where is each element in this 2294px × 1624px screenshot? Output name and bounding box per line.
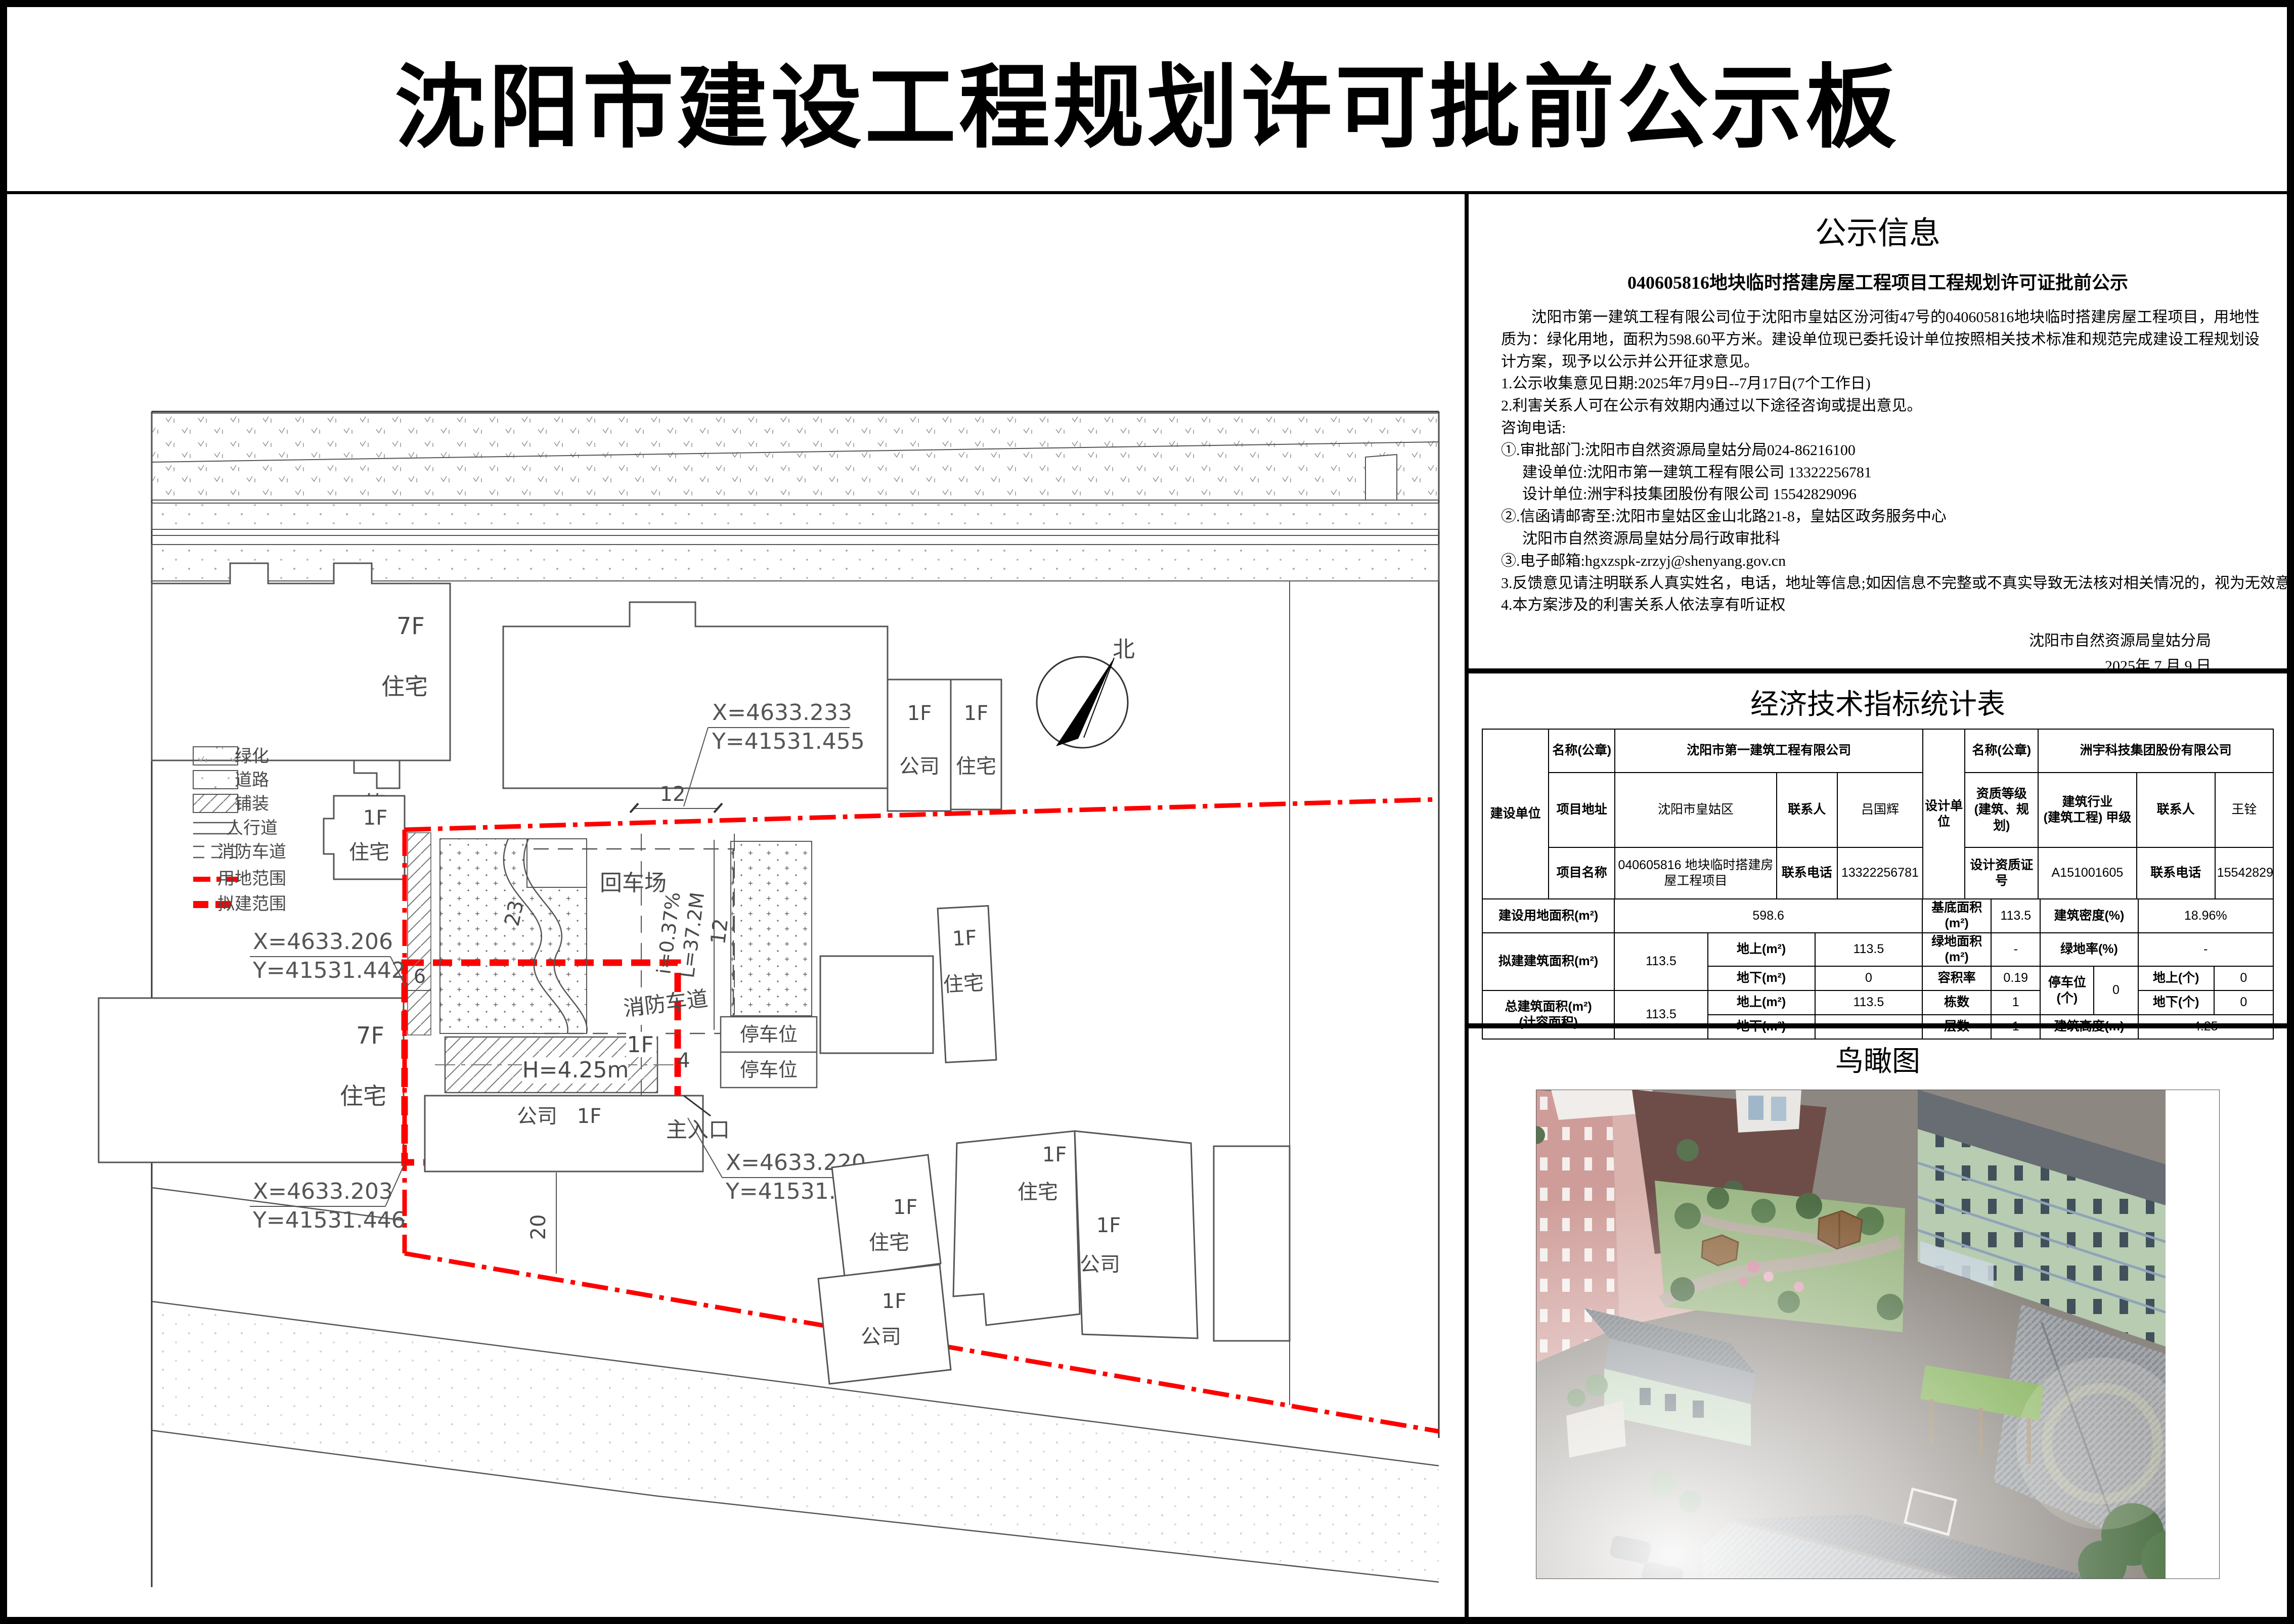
cell: 名称(公章) (1965, 729, 2038, 773)
notice-item: 设计单位:洲宇科技集团股份有限公司 15542829096 (1501, 483, 2260, 506)
plan-legend: 绿化 道路 铺装 人行道 消防车道 用地范围 拟建范围 (193, 746, 286, 914)
green-belt (152, 413, 1439, 500)
legend-label: 消防车道 (217, 842, 286, 862)
cell: 地上(m²) (1708, 933, 1815, 967)
cell-line: 建筑行业 (2040, 794, 2134, 810)
bldg-label-floors: 1F (577, 1105, 601, 1128)
stats-panel: 经济技术指标统计表 建设单位 名称(公章) 沈阳市第一建筑工程有限公司 设计单位… (1469, 673, 2287, 1028)
cell: 名称(公章) (1549, 729, 1615, 773)
building-company-4f: 公司 4F (503, 602, 888, 788)
cell-unit-designer: 设计单位 (1923, 729, 1965, 899)
notice-item: ③.电子邮箱:hgxzspk-zrzyj@shenyang.gov.cn (1501, 550, 2260, 572)
cell: 吕国辉 (1837, 773, 1923, 847)
building-company-1f: 公司 1F (425, 1096, 703, 1171)
cell: 0 (2214, 990, 2273, 1015)
cell: 沈阳市第一建筑工程有限公司 (1615, 729, 1923, 773)
dim-label: 12 (707, 917, 733, 945)
stats-table-bottom: 建设用地面积(m²) 598.6 基底面积(m²) 113.5 建筑密度(%) … (1482, 898, 2274, 1040)
coord-callout-1: X=4633.233 Y=41531.455 (684, 697, 865, 806)
cell: 113.5 (1815, 933, 1922, 967)
notice-panel: 公示信息 040605816地块临时搭建房屋工程项目工程规划许可证批前公示 沈阳… (1469, 194, 2287, 673)
north-label: 北 (1113, 637, 1135, 662)
legend-label: 铺装 (235, 794, 269, 814)
cell: - (1991, 933, 2040, 967)
cell-line: 资质等级 (1967, 786, 2036, 802)
notice-body: 沈阳市第一建筑工程有限公司位于沈阳市皇姑区汾河街47号的040605816地块临… (1501, 306, 2260, 616)
bldg-label-floors: 1F (952, 926, 978, 951)
cell-line: 总建筑面积(m²) (1484, 999, 1612, 1015)
cell: 1 (1991, 990, 2040, 1015)
cell-line: (建筑、规划) (1967, 802, 2036, 834)
coord-x: X=4633.233 (712, 700, 852, 726)
page-title: 沈阳市建设工程规划许可批前公示板 (394, 33, 1900, 165)
bldg-label-use: 住宅 (1018, 1181, 1058, 1204)
dim-label: 12 (660, 783, 686, 806)
site-plan-drawing: 7F 住宅 筒 1F 住宅 绿化 道路 铺装 (7, 194, 1465, 1617)
birdseye-render (1536, 1090, 2220, 1579)
signature-org: 沈阳市自然资源局皇姑分局 (1469, 628, 2211, 654)
turnaround-label: 回车场 (600, 870, 667, 896)
cell-unit-builder: 建设单位 (1482, 729, 1549, 899)
notice-signature: 沈阳市自然资源局皇姑分局 2025年 7 月 9 日 (1469, 628, 2287, 679)
legend-label: 人行道 (226, 818, 278, 838)
coord-y: Y=41531.455 (712, 729, 865, 754)
cell: 建设用地面积(m²) (1482, 899, 1614, 933)
cell: 地下(个) (2138, 990, 2214, 1015)
dim-20: 20 (527, 1172, 556, 1274)
bldg-label-floors: 1F (964, 702, 988, 725)
building-1f-left: 1F 住宅 (324, 796, 405, 879)
cell: 建筑行业 (建筑工程) 甲级 (2038, 773, 2136, 847)
stats-table-top: 建设单位 名称(公章) 沈阳市第一建筑工程有限公司 设计单位 名称(公章) 洲宇… (1482, 729, 2274, 899)
bldg-label-use: 住宅 (869, 1231, 909, 1254)
cell: 联系人 (2137, 773, 2215, 847)
cell-line: (建筑工程) 甲级 (2040, 810, 2134, 826)
cell: 地上(m²) (1708, 990, 1815, 1015)
legend-label: 拟建范围 (217, 894, 286, 914)
cell: 项目地址 (1549, 773, 1615, 847)
birdseye-heading: 鸟瞰图 (1469, 1039, 2287, 1079)
paving-strip (408, 833, 431, 1035)
coord-callout-2: X=4633.206 Y=41531.442 (250, 929, 406, 986)
bldg-label-floors: 1F (363, 806, 387, 830)
cell: 基底面积(m²) (1922, 899, 1991, 933)
stats-table: 建设单位 名称(公章) 沈阳市第一建筑工程有限公司 设计单位 名称(公章) 洲宇… (1482, 729, 2274, 1040)
notice-item: 沈阳市自然资源局皇姑分局行政审批科 (1501, 528, 2260, 550)
bldg-label-use: 公司 (899, 755, 940, 778)
cell: 资质等级 (建筑、规划) (1965, 773, 2038, 847)
notice-item: ②.信函请邮寄至:沈阳市皇姑区金山北路21-8，皇姑区政务服务中心 (1501, 506, 2260, 528)
bldg-label-floors: 7F (356, 1022, 384, 1049)
bldg-label-use: 住宅 (381, 673, 428, 700)
coord-x: X=4633.206 (253, 929, 393, 955)
cell: 040605816 地块临时搭建房屋工程项目 (1615, 847, 1776, 899)
fire-lane-label: 消防车道 (622, 986, 710, 1021)
bldg-label-use: 住宅 (349, 841, 389, 864)
legend-label: 道路 (235, 770, 269, 790)
bldg-label-use: 住宅 (943, 971, 984, 997)
cell: 建筑密度(%) (2040, 899, 2138, 933)
height-label: H=4.25m (522, 1057, 629, 1083)
bldg-label-floors: 1F (893, 1196, 917, 1219)
cell: 沈阳市皇姑区 (1615, 773, 1776, 847)
bldg-label-floors: 1F (1042, 1143, 1067, 1166)
cell: 设计资质证号 (1965, 847, 2038, 899)
cell: 洲宇科技集团股份有限公司 (2038, 729, 2273, 773)
bldg-label-floors: 1F (907, 702, 932, 725)
cell: - (2138, 933, 2273, 967)
coord-x: X=4633.203 (253, 1179, 393, 1204)
parking-label: 停车位 (740, 1059, 798, 1081)
cell: 联系电话 (2137, 847, 2215, 899)
building-towers: 1F 公司 1F 住宅 (888, 680, 1001, 811)
legend-label: 绿化 (235, 746, 269, 766)
notice-item: 4.本方案涉及的利害关系人依法享有听证权 (1501, 594, 2260, 616)
bldg-label-floors: 1F (882, 1290, 906, 1313)
cell: 绿地率(%) (2040, 933, 2138, 967)
cell: A151001605 (2038, 847, 2136, 899)
dim-label: 6 (414, 965, 426, 987)
bldg-label-floors: 1F (1096, 1214, 1121, 1237)
coord-y: Y=41531.442 (252, 958, 406, 983)
bldg-label-use: 公司 (861, 1325, 901, 1348)
coord-callout-3: X=4633.203 Y=41531.446 (250, 1163, 406, 1233)
bldg-label-use: 住宅 (340, 1082, 386, 1110)
bldg-label-use: 公司 (517, 1105, 557, 1128)
proposed-building: H=4.25m 1F (435, 1032, 680, 1093)
cell: 113.5 (1614, 933, 1707, 991)
notice-item: 建设单位:沈阳市第一建筑工程有限公司 13322256781 (1501, 462, 2260, 484)
title-bar: 沈阳市建设工程规划许可批前公示板 (7, 7, 2287, 194)
cell: 113.5 (1815, 990, 1922, 1015)
notice-item: 2.利害关系人可在公示有效期内通过以下途径咨询或提出意见。 (1501, 395, 2260, 417)
bldg-label-use: 公司 (1080, 1253, 1120, 1276)
cell: 15542829096 (2215, 847, 2273, 899)
legend-label: 用地范围 (217, 869, 286, 889)
entrance-label: 主入口 (666, 1117, 730, 1142)
cell: 王铨 (2215, 773, 2273, 847)
birdseye-panel: 鸟瞰图 (1469, 1028, 2287, 1617)
notice-paragraph: 沈阳市第一建筑工程有限公司位于沈阳市皇姑区汾河街47号的040605816地块临… (1501, 306, 2260, 373)
parking-label: 停车位 (740, 1023, 798, 1046)
right-column: 公示信息 040605816地块临时搭建房屋工程项目工程规划许可证批前公示 沈阳… (1465, 194, 2287, 1617)
dim-label: 4 (677, 1049, 690, 1072)
bldg-label-floors: 7F (396, 612, 425, 640)
cell: 停车位(个) (2040, 966, 2094, 1015)
building-7f-long: 7F 住宅 (99, 998, 404, 1162)
stats-heading: 经济技术指标统计表 (1469, 682, 2287, 723)
cell: 0 (1815, 966, 1922, 990)
building-1f-right: 1F 住宅 (938, 906, 996, 1063)
cell: 13322256781 (1837, 847, 1923, 899)
bldg-label-floors: 1F (627, 1032, 653, 1058)
notice-item: 3.反馈意见请注明联系人真实姓名，电话，地址等信息;如因信息不完整或不真实导致无… (1501, 572, 2260, 595)
dim-label: 20 (527, 1214, 550, 1240)
cell: 18.96% (2138, 899, 2273, 933)
notice-board: 沈阳市建设工程规划许可批前公示板 (0, 0, 2294, 1624)
notice-item: ①.审批部门:沈阳市自然资源局皇姑分局024-86216100 (1501, 439, 2260, 462)
bldg-label-use: 住宅 (956, 755, 996, 778)
cell: 联系人 (1777, 773, 1837, 847)
cell: 栋数 (1922, 990, 1991, 1015)
cell: 联系电话 (1777, 847, 1837, 899)
cell: 项目名称 (1549, 847, 1615, 899)
cell: 地下(m²) (1708, 966, 1815, 990)
cell: 0 (2214, 966, 2273, 990)
notice-item: 咨询电话: (1501, 417, 2260, 439)
notice-subtitle: 040605816地块临时搭建房屋工程项目工程规划许可证批前公示 (1474, 268, 2282, 294)
notice-item: 1.公示收集意见日期:2025年7月9日--7月17日(7个工作日) (1501, 373, 2260, 395)
cell: 113.5 (1991, 899, 2040, 933)
notice-heading: 公示信息 (1469, 207, 2287, 253)
cell: 绿地面积(m²) (1922, 933, 1991, 967)
cell: 容积率 (1922, 966, 1991, 990)
cell: 598.6 (1614, 899, 1922, 933)
cell: 地上(个) (2138, 966, 2214, 990)
site-plan-panel: 7F 住宅 筒 1F 住宅 绿化 道路 铺装 (7, 194, 1465, 1617)
cell: 0.19 (1991, 966, 2040, 990)
haze-overlay (1536, 1090, 2220, 1579)
cell: 0 (2094, 966, 2138, 1015)
cell: 拟建建筑面积(m²) (1482, 933, 1614, 991)
right-margin (2166, 1090, 2220, 1579)
north-compass: 北 (1037, 637, 1135, 748)
